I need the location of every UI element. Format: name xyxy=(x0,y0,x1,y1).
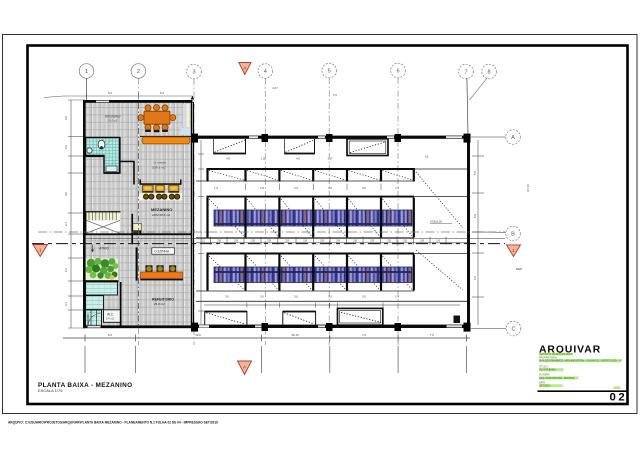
svg-text:5.5: 5.5 xyxy=(333,93,337,97)
svg-text:3.0: 3.0 xyxy=(225,295,229,299)
svg-text:3.1: 3.1 xyxy=(64,302,68,306)
svg-text:3: 3 xyxy=(192,70,195,76)
svg-text:7: 7 xyxy=(464,70,467,76)
svg-text:2.1: 2.1 xyxy=(64,222,68,226)
svg-text:n. mesas: n. mesas xyxy=(154,161,167,165)
svg-text:3.6: 3.6 xyxy=(64,116,68,120)
svg-text:2.8: 2.8 xyxy=(370,239,374,243)
svg-text:4.50x2.20: 4.50x2.20 xyxy=(430,220,442,224)
svg-text:4.07: 4.07 xyxy=(272,86,278,90)
svg-text:4.5: 4.5 xyxy=(296,157,300,161)
svg-text:B: B xyxy=(511,232,515,238)
svg-text:5.4: 5.4 xyxy=(160,91,164,95)
svg-text:1.17: 1.17 xyxy=(327,157,333,161)
svg-text:1.4: 1.4 xyxy=(395,295,399,299)
svg-text:4: 4 xyxy=(264,69,267,75)
svg-text:A: A xyxy=(511,135,515,141)
svg-text:3.0: 3.0 xyxy=(294,186,298,190)
svg-text:36.10: 36.10 xyxy=(292,333,299,337)
svg-text:ESCALA 1/75: ESCALA 1/75 xyxy=(38,388,63,393)
svg-text:2.0: 2.0 xyxy=(64,145,68,149)
svg-text:ATRIO: ATRIO xyxy=(98,247,109,251)
svg-text:2.8: 2.8 xyxy=(387,239,391,243)
svg-text:3.0: 3.0 xyxy=(294,295,298,299)
svg-text:W.C.: W.C. xyxy=(107,313,114,317)
svg-text:COZINHA: COZINHA xyxy=(154,250,170,254)
svg-text:C: C xyxy=(511,327,515,333)
svg-text:2.4 m2: 2.4 m2 xyxy=(106,317,114,321)
svg-text:ARQUIVO: C:\USUARIO\PROJETOS\A: ARQUIVO: C:\USUARIO\PROJETOS\ARQUIVAR\PL… xyxy=(8,421,218,425)
svg-text:12.6: 12.6 xyxy=(195,333,201,337)
svg-text:ENG. ARQUITETURA - ABC/0000: ENG. ARQUITETURA - ABC/0000 xyxy=(540,377,576,380)
svg-text:3.0: 3.0 xyxy=(362,295,366,299)
svg-text:PROPRIETARIO: PROPRIETARIO xyxy=(539,357,557,360)
svg-text:1.8: 1.8 xyxy=(260,186,264,190)
svg-text:37.10: 37.10 xyxy=(526,184,530,192)
svg-text:2.8: 2.8 xyxy=(403,239,407,243)
svg-text:1.5: 1.5 xyxy=(214,186,218,190)
svg-text:6: 6 xyxy=(396,69,399,75)
svg-text:L5: L5 xyxy=(425,155,429,159)
svg-text:5.5: 5.5 xyxy=(473,171,477,175)
svg-text:MEZANINO: MEZANINO xyxy=(151,207,172,212)
svg-text:100+1 m2: 100+1 m2 xyxy=(152,166,166,170)
svg-text:DEP.: DEP. xyxy=(516,267,523,271)
svg-text:REFEITORIO: REFEITORIO xyxy=(152,298,174,302)
svg-text:3.0: 3.0 xyxy=(362,186,366,190)
svg-text:2: 2 xyxy=(137,69,140,75)
svg-text:1.11: 1.11 xyxy=(260,157,266,161)
svg-text:5.9: 5.9 xyxy=(473,214,477,218)
svg-text:4.0: 4.0 xyxy=(64,192,68,196)
svg-text:2.8: 2.8 xyxy=(320,239,324,243)
svg-text:ADM 48.6 m2: ADM 48.6 m2 xyxy=(152,213,171,217)
svg-text:5.2: 5.2 xyxy=(108,91,112,95)
svg-text:1.6: 1.6 xyxy=(436,239,440,243)
svg-text:TITULO: TITULO xyxy=(539,366,548,369)
svg-text:1.2: 1.2 xyxy=(201,239,205,243)
svg-text:PLANTA BAIXA: PLANTA BAIXA xyxy=(540,369,557,372)
svg-text:2.8: 2.8 xyxy=(217,239,221,243)
svg-text:AUTORIA: AUTORIA xyxy=(539,374,550,377)
svg-text:3.0: 3.0 xyxy=(260,295,264,299)
svg-text:15.0 m2: 15.0 m2 xyxy=(108,119,118,123)
svg-text:2.8: 2.8 xyxy=(336,239,340,243)
svg-text:6.6: 6.6 xyxy=(473,276,477,280)
svg-text:5: 5 xyxy=(328,69,331,75)
svg-text:5.2: 5.2 xyxy=(108,333,112,337)
svg-text:02: 02 xyxy=(610,392,628,404)
svg-text:DATA: DATA xyxy=(539,381,545,384)
svg-text:25.8 m2: 25.8 m2 xyxy=(154,302,165,306)
svg-text:8: 8 xyxy=(488,70,491,76)
svg-text:2.8: 2.8 xyxy=(420,239,424,243)
svg-text:3.0: 3.0 xyxy=(328,186,332,190)
svg-text:RUA DOS PINHEIROS, AREA INDUST: RUA DOS PINHEIROS, AREA INDUSTRIAL - GAL… xyxy=(540,360,623,363)
svg-text:2.8: 2.8 xyxy=(251,239,255,243)
svg-text:2.8: 2.8 xyxy=(303,239,307,243)
svg-text:SET/2019: SET/2019 xyxy=(540,386,551,388)
svg-text:4.5: 4.5 xyxy=(226,157,230,161)
svg-text:REUNIAO: REUNIAO xyxy=(105,115,121,119)
svg-text:7.0: 7.0 xyxy=(430,333,434,337)
svg-text:2.3: 2.3 xyxy=(64,268,68,272)
svg-text:2.8: 2.8 xyxy=(285,239,289,243)
svg-text:1: 1 xyxy=(85,69,88,75)
svg-text:2.8: 2.8 xyxy=(234,239,238,243)
svg-text:1.4: 1.4 xyxy=(395,186,399,190)
svg-text:A: A xyxy=(243,365,246,370)
svg-text:A: A xyxy=(243,66,246,71)
svg-text:3.0: 3.0 xyxy=(328,295,332,299)
svg-text:7.0: 7.0 xyxy=(362,333,366,337)
svg-text:2.8: 2.8 xyxy=(267,239,271,243)
svg-text:2.8: 2.8 xyxy=(353,239,357,243)
